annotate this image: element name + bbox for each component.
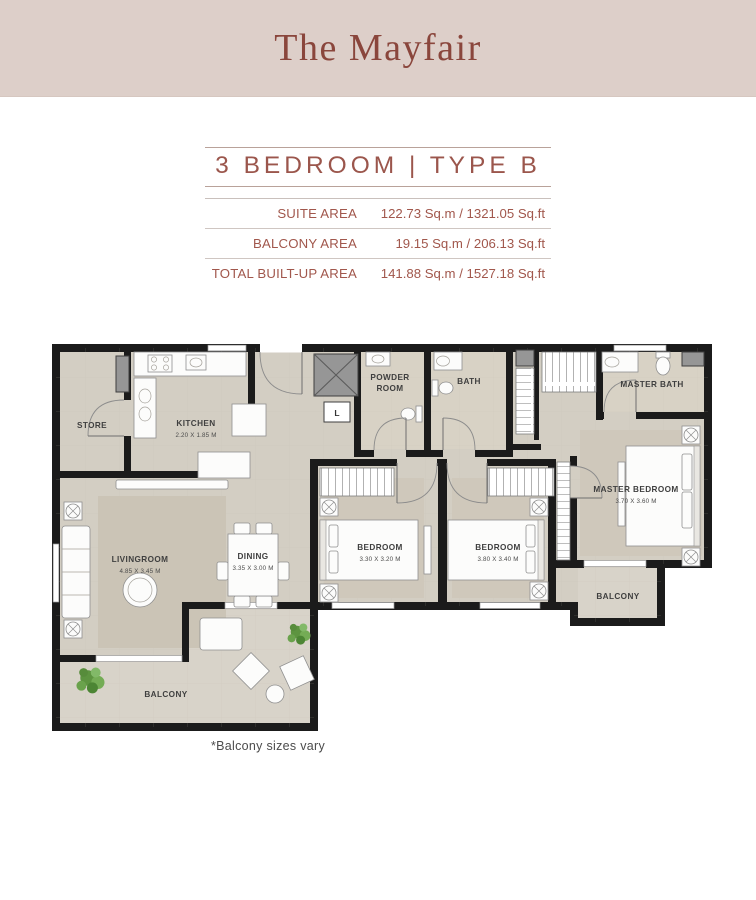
area-row-label: BALCONY AREA xyxy=(205,236,357,251)
table-row: SUITE AREA 122.73 Sq.m / 1321.05 Sq.ft xyxy=(205,199,551,229)
balcony-footnote: *Balcony sizes vary xyxy=(211,739,325,753)
room-label-bedroom2: BEDROOM xyxy=(475,543,521,552)
area-row-value: 19.15 Sq.m / 206.13 Sq.ft xyxy=(357,236,551,251)
utility-column xyxy=(116,356,129,392)
unit-type-heading: 3 BEDROOM | TYPE B xyxy=(205,147,551,187)
floor-plan: L xyxy=(52,344,712,734)
service-shaft xyxy=(516,350,534,366)
room-label-bedroom1: BEDROOM xyxy=(357,543,403,552)
room-label-kitchen: KITCHEN xyxy=(176,419,215,428)
room-dims-livingroom: 4.85 X 3.45 M xyxy=(119,568,160,575)
room-dims-dining: 3.35 X 3.00 M xyxy=(232,565,273,572)
entrance-opening xyxy=(260,344,302,353)
unit-type-title: 3 BEDROOM | TYPE B xyxy=(205,152,551,180)
room-label-bath: BATH xyxy=(457,377,481,386)
table-row: BALCONY AREA 19.15 Sq.m / 206.13 Sq.ft xyxy=(205,229,551,259)
room-label-powder-1: POWDER xyxy=(370,373,409,382)
page-title: The Mayfair xyxy=(274,26,481,70)
area-row-value: 141.88 Sq.m / 1527.18 Sq.ft xyxy=(357,266,551,281)
room-label-livingroom: LIVINGROOM xyxy=(112,555,169,564)
room-dims-bedroom2: 3.80 X 3.40 M xyxy=(477,556,518,563)
room-label-balcony-bottom: BALCONY xyxy=(144,690,187,699)
room-dims-master-bedroom: 3.70 X 3.60 M xyxy=(615,498,656,505)
area-row-value: 122.73 Sq.m / 1321.05 Sq.ft xyxy=(357,206,551,221)
lift-label: L xyxy=(334,408,339,418)
room-label-dining: DINING xyxy=(237,552,268,561)
room-label-master-bath: MASTER BATH xyxy=(620,380,683,389)
room-label-master-bedroom: MASTER BEDROOM xyxy=(593,485,678,494)
area-row-label: SUITE AREA xyxy=(205,206,357,221)
area-row-label: TOTAL BUILT-UP AREA xyxy=(205,266,357,281)
master-bedroom-furniture xyxy=(618,426,700,566)
room-label-store: STORE xyxy=(77,421,107,430)
room-label-powder-2: ROOM xyxy=(376,384,403,393)
area-table: SUITE AREA 122.73 Sq.m / 1321.05 Sq.ft B… xyxy=(205,198,551,288)
room-dims-kitchen: 2.20 X 1.85 M xyxy=(175,432,216,439)
page-header: The Mayfair xyxy=(0,0,756,97)
room-label-balcony-right: BALCONY xyxy=(596,592,639,601)
service-shaft xyxy=(682,352,704,366)
table-row: TOTAL BUILT-UP AREA 141.88 Sq.m / 1527.1… xyxy=(205,259,551,288)
room-dims-bedroom1: 3.30 X 3.20 M xyxy=(359,556,400,563)
master-bath-fixtures xyxy=(602,352,670,375)
